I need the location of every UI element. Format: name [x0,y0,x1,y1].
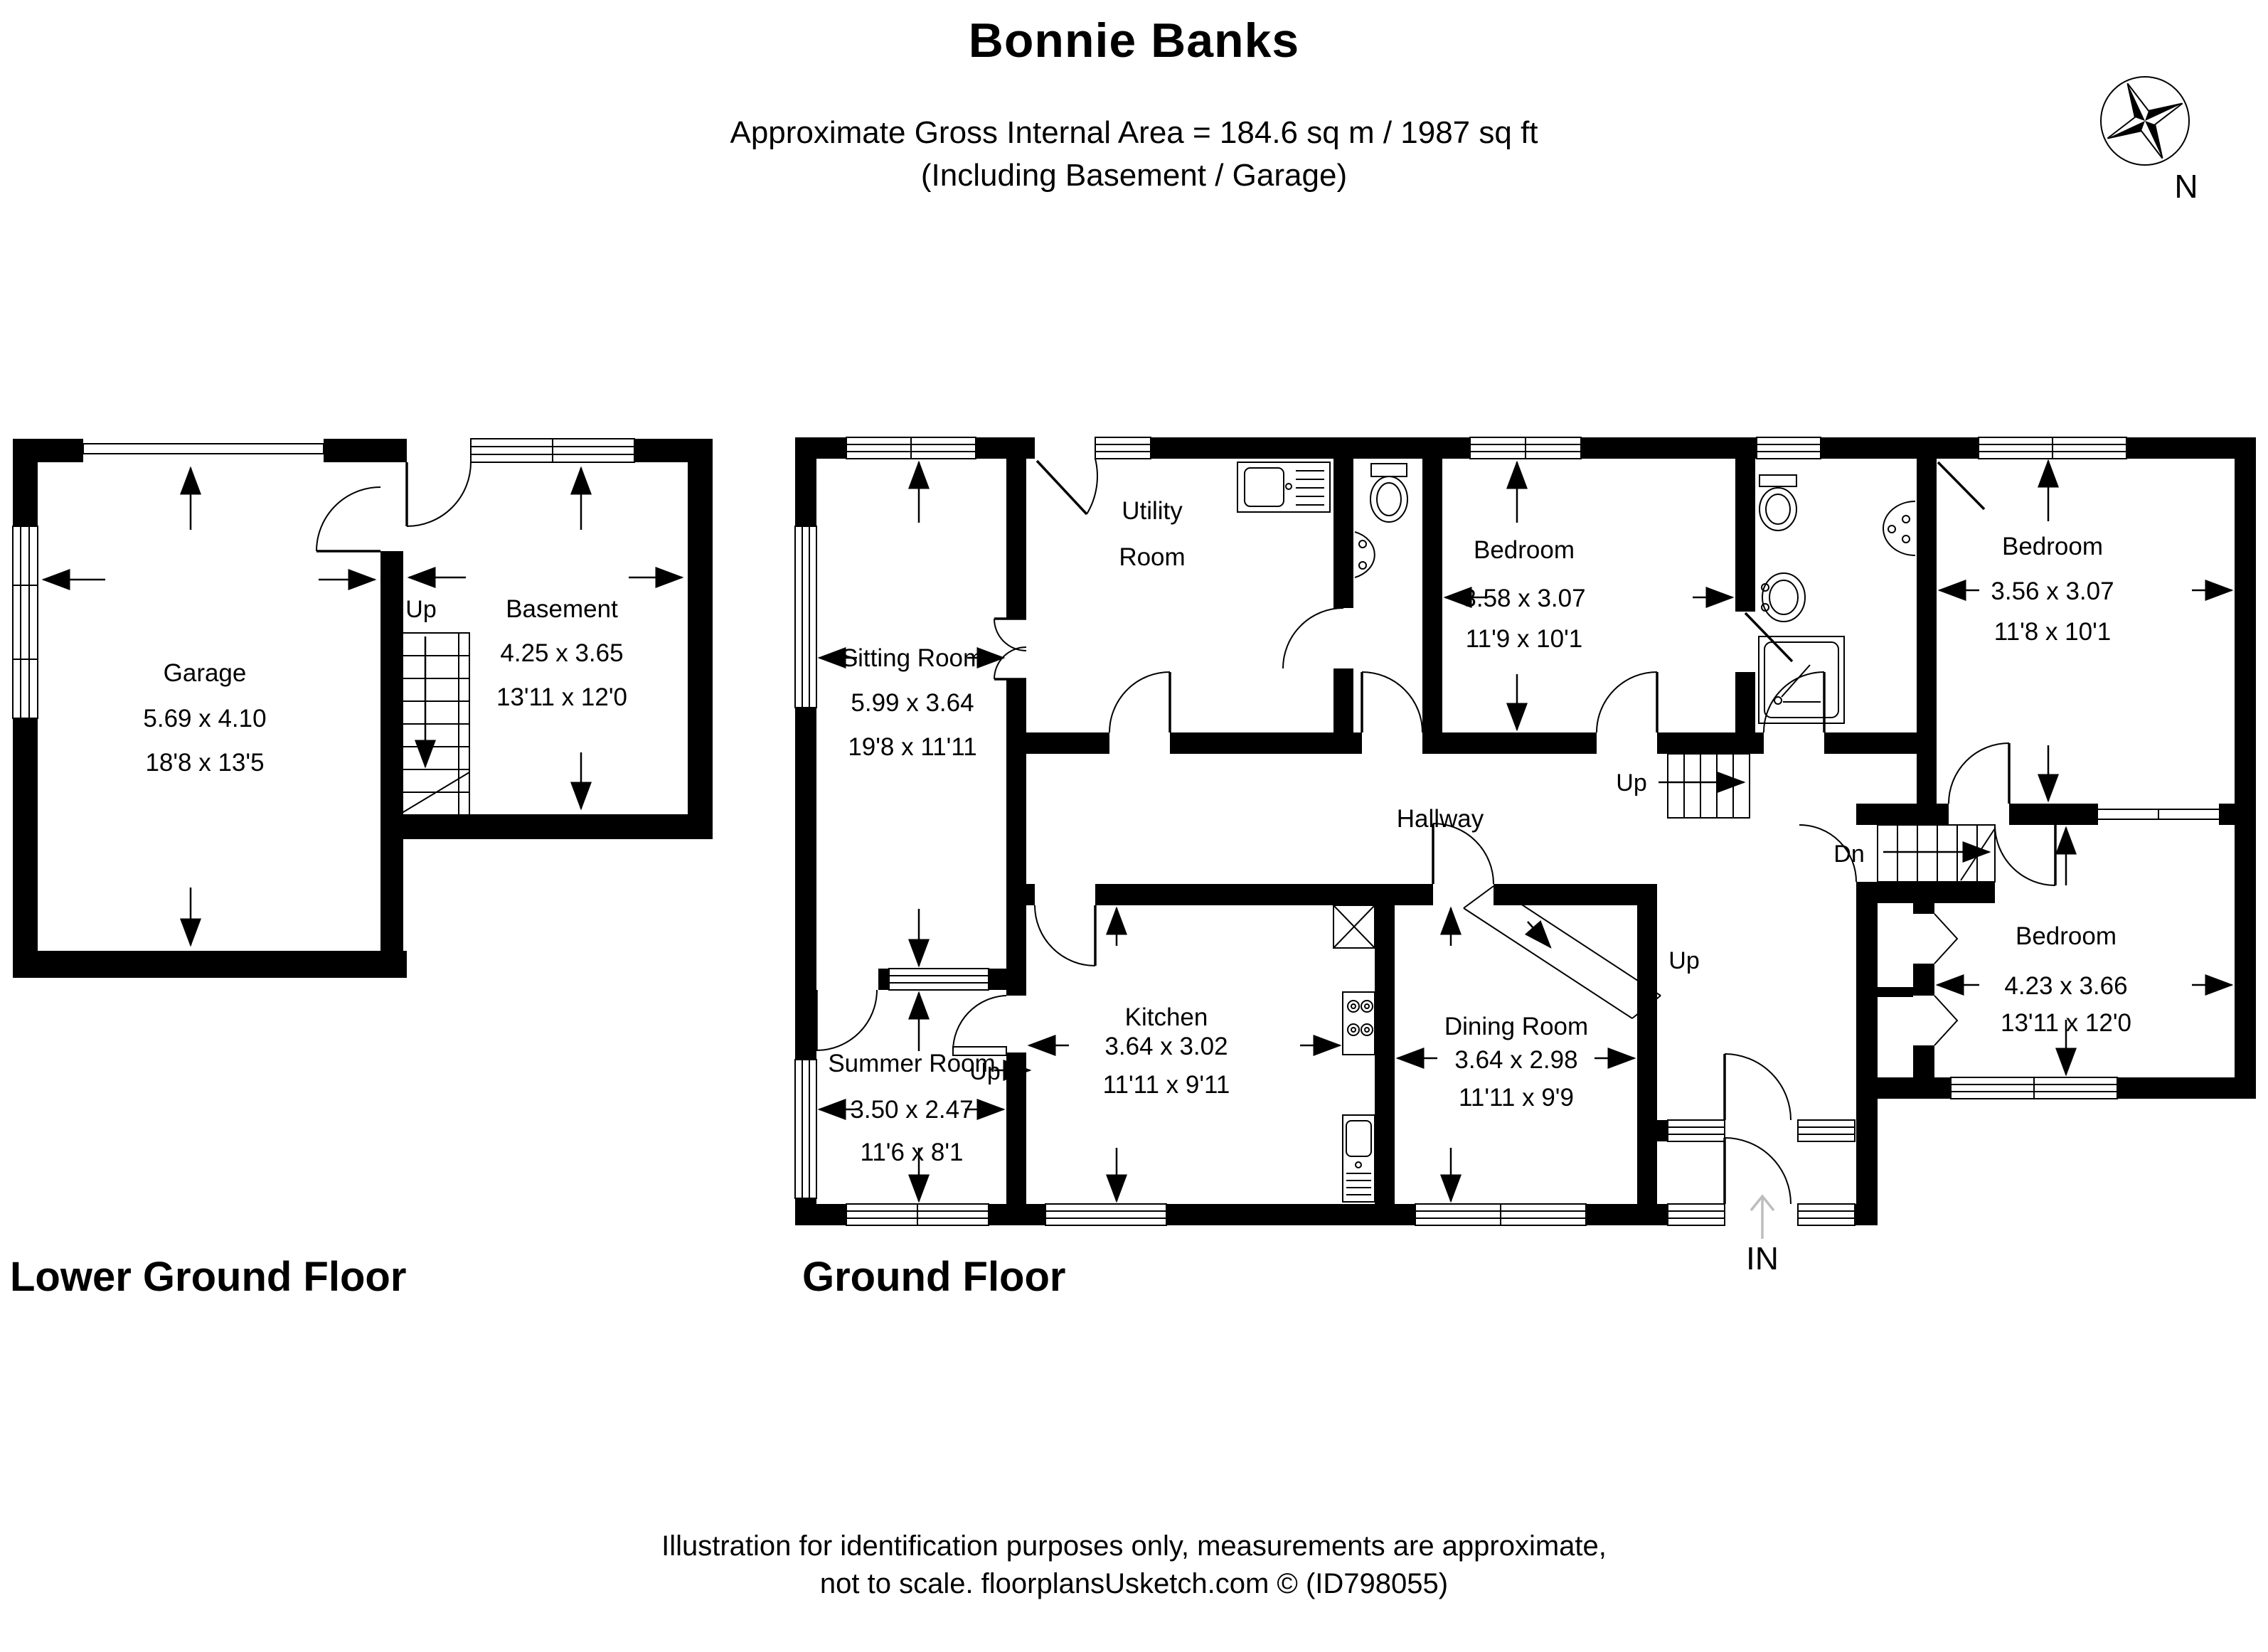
front-door [1725,1138,1791,1204]
garage-door [83,444,324,454]
bedroom3-label: Bedroom 4.23 x 3.66 13'11 x 12'0 [2001,922,2131,1037]
entrance-arrow-icon [1751,1196,1774,1239]
svg-text:3.64 x 3.02: 3.64 x 3.02 [1104,1033,1228,1060]
svg-text:13'11 x 12'0: 13'11 x 12'0 [496,683,627,711]
garage-window [13,526,38,718]
svg-text:Dining Room: Dining Room [1444,1013,1588,1040]
svg-text:4.25 x 3.65: 4.25 x 3.65 [500,639,623,667]
lower-ground-floor-plan: Up Garage 5.69 x 4.10 18'8 x 13'5 Baseme… [0,427,754,996]
bathroom-bidet-icon [1762,573,1805,622]
svg-text:Bedroom: Bedroom [1474,536,1575,564]
wardrobe-front [2098,809,2219,819]
utility-exterior-door [1037,459,1097,514]
svg-text:11'11 x 9'9: 11'11 x 9'9 [1459,1084,1574,1112]
wc-basin-icon [1355,532,1375,577]
shower-icon [1759,636,1844,723]
kitchen-label: Kitchen 3.64 x 3.02 11'11 x 9'11 [1103,1003,1230,1099]
svg-text:Bedroom: Bedroom [2002,533,2103,560]
summer-room-door [816,990,877,1050]
svg-text:5.69 x 4.10: 5.69 x 4.10 [143,705,266,732]
bedroom2-door [1949,743,2009,804]
svg-text:Basement: Basement [506,595,618,623]
svg-text:Kitchen: Kitchen [1125,1003,1208,1031]
utility-room-label: Utility Room [1119,497,1185,571]
svg-text:11'9 x 10'1: 11'9 x 10'1 [1466,625,1583,653]
svg-text:11'6 x 8'1: 11'6 x 8'1 [860,1139,963,1166]
svg-text:Sitting Room: Sitting Room [841,644,984,672]
svg-text:Room: Room [1119,543,1185,571]
kitchen-door [1035,905,1095,966]
garage-room-label: Garage 5.69 x 4.10 18'8 x 13'5 [143,659,266,777]
stairs-up-main [1659,754,1750,818]
basement-window [471,439,634,462]
bedroom2-label: Bedroom 3.56 x 3.07 11'8 x 10'1 [1991,533,2114,646]
dining-room-label: Dining Room 3.64 x 2.98 11'11 x 9'9 [1444,1013,1588,1112]
basement-entry-door [407,462,471,526]
stairs-down-label: Dn [1833,841,1864,868]
kitchen-sink-icon [1343,1115,1375,1202]
svg-text:3.56 x 3.07: 3.56 x 3.07 [1991,577,2114,605]
svg-text:5.99 x 3.64: 5.99 x 3.64 [851,689,974,717]
compass-star-icon [2107,83,2182,158]
entrance-label: IN [1746,1240,1779,1269]
svg-text:Utility: Utility [1122,497,1183,525]
basement-stairs [396,633,469,818]
stairs-down [1878,825,1995,882]
svg-text:3.64 x 2.98: 3.64 x 2.98 [1454,1046,1577,1074]
compass-rose: N [2084,60,2262,217]
porch-inner-door [1725,1054,1791,1120]
bathroom-basin-icon [1883,501,1915,555]
svg-text:4.23 x 3.66: 4.23 x 3.66 [2004,972,2127,1000]
stairs-up-ramp-label: Up [1668,947,1699,974]
svg-text:11'11 x 9'11: 11'11 x 9'11 [1103,1071,1230,1099]
svg-text:18'8 x 13'5: 18'8 x 13'5 [145,749,264,777]
stairs-up-ramp [1464,886,1661,1018]
page-title: Bonnie Banks [0,13,2268,68]
step-up-label: Up [969,1058,1000,1085]
svg-text:Bedroom: Bedroom [2016,922,2117,950]
bedroom2-corner-door [1938,462,1984,509]
summer-kitchen-step-door [953,996,1006,1055]
bedroom1-label: Bedroom 3.58 x 3.07 11'9 x 10'1 [1462,536,1585,653]
svg-text:19'8 x 11'11: 19'8 x 11'11 [848,733,976,761]
svg-text:3.58 x 3.07: 3.58 x 3.07 [1462,585,1585,612]
disclaimer-line1: Illustration for identification purposes… [0,1530,2268,1562]
wc-toilet-icon [1370,464,1407,522]
bathroom-toilet-icon [1759,475,1796,531]
bedroom3-door [1995,825,2055,885]
kitchen-counter-icon [1333,905,1375,948]
svg-text:13'11 x 12'0: 13'11 x 12'0 [2001,1009,2131,1037]
compass-north-label: N [2174,168,2198,205]
disclaimer-line2: not to scale. floorplansUsketch.com © (I… [0,1568,2268,1600]
kitchen-hob-icon [1343,992,1375,1055]
ground-floor-label: Ground Floor [802,1253,1066,1301]
utility-wc-door [1283,608,1343,668]
svg-text:3.50 x 2.47: 3.50 x 2.47 [850,1096,973,1124]
lower-ground-floor-label: Lower Ground Floor [10,1253,406,1301]
utility-hall-door [1109,672,1170,732]
wc-door [1362,672,1422,732]
bedroom1-door [1597,672,1657,732]
svg-text:Hallway: Hallway [1397,805,1484,833]
basement-stairs-up-label: Up [405,596,436,623]
sitting-room-double-doors [994,619,1026,679]
hallway-label: Hallway [1397,805,1484,833]
basement-room-label: Basement 4.25 x 3.65 13'11 x 12'0 [496,595,627,711]
svg-text:11'8 x 10'1: 11'8 x 10'1 [1994,618,2112,646]
floorplan-page: Bonnie Banks Approximate Gross Internal … [0,0,2268,1652]
gross-area-text: Approximate Gross Internal Area = 184.6 … [0,115,2268,151]
stairs-up-main-label: Up [1616,769,1646,796]
utility-sink-icon [1237,462,1330,512]
svg-text:Garage: Garage [164,659,247,687]
ground-floor-plan: Up Up Dn [789,427,2268,1269]
closet-bifold-doors [1934,914,1957,1045]
garage-basement-door [316,487,380,551]
including-text: (Including Basement / Garage) [0,158,2268,193]
sitting-room-label: Sitting Room 5.99 x 3.64 19'8 x 11'11 [841,644,984,761]
